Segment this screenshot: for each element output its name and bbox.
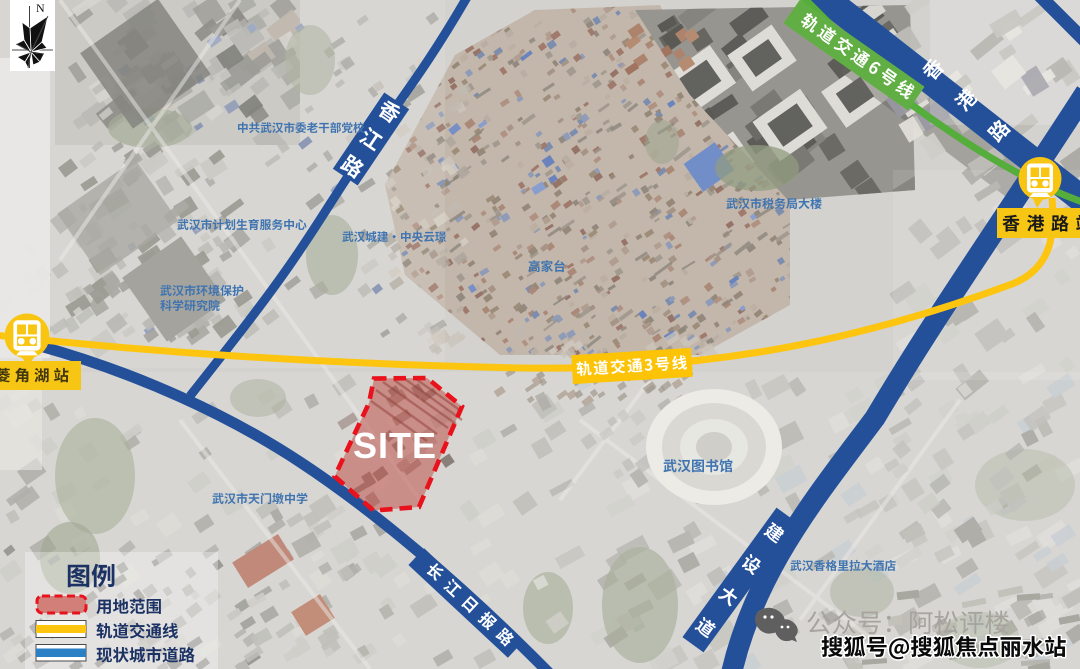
svg-text:N: N xyxy=(36,1,45,15)
svg-text:SITE: SITE xyxy=(353,425,437,466)
